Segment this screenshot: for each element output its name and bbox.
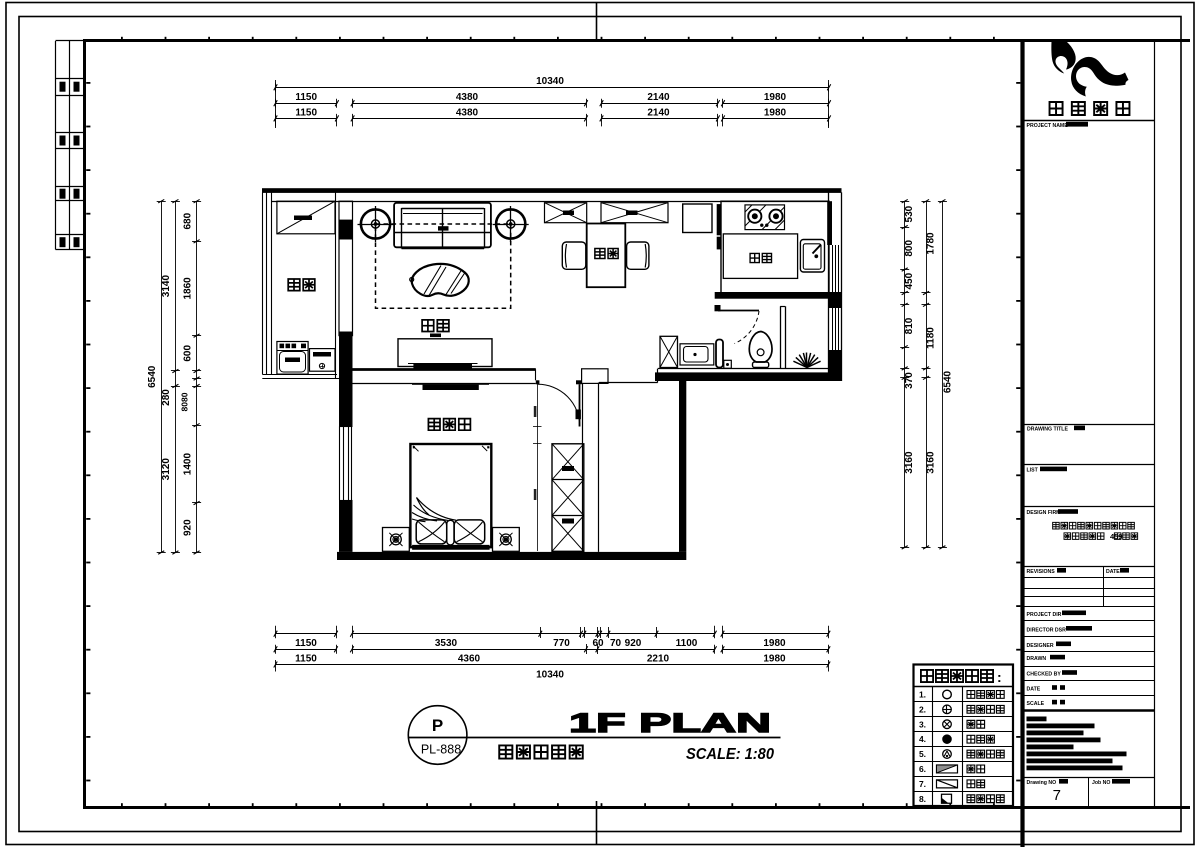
svg-text:1860: 1860 bbox=[182, 277, 193, 300]
svg-text:DESIGNER: DESIGNER bbox=[1027, 643, 1054, 649]
svg-text:1150: 1150 bbox=[295, 107, 317, 118]
svg-text:Job NO: Job NO bbox=[1092, 780, 1110, 786]
svg-text:2140: 2140 bbox=[647, 92, 670, 103]
svg-text:SCALE: 1:80: SCALE: 1:80 bbox=[686, 746, 774, 763]
svg-text:6.: 6. bbox=[919, 764, 926, 774]
svg-text::: : bbox=[997, 669, 1002, 685]
svg-text:680: 680 bbox=[182, 212, 193, 229]
svg-text:4380: 4380 bbox=[456, 92, 479, 103]
svg-text:770: 770 bbox=[553, 638, 570, 649]
svg-text:1.: 1. bbox=[919, 689, 926, 699]
svg-text:1980: 1980 bbox=[764, 92, 787, 103]
svg-text:10340: 10340 bbox=[536, 670, 564, 681]
svg-text:1F PLAN: 1F PLAN bbox=[569, 708, 771, 738]
svg-text:SCALE: SCALE bbox=[1027, 701, 1045, 707]
svg-text:3160: 3160 bbox=[926, 451, 937, 474]
svg-text:3.: 3. bbox=[919, 719, 926, 729]
svg-text:DRAWN: DRAWN bbox=[1027, 656, 1047, 662]
svg-text:530: 530 bbox=[904, 205, 915, 222]
svg-text:3530: 3530 bbox=[435, 638, 458, 649]
svg-text:280: 280 bbox=[161, 389, 172, 406]
svg-text:6540: 6540 bbox=[147, 365, 158, 388]
svg-text:PROJECT NAME: PROJECT NAME bbox=[1027, 123, 1069, 129]
svg-text:4.: 4. bbox=[919, 734, 926, 744]
svg-text:450: 450 bbox=[904, 272, 915, 289]
svg-text:4380: 4380 bbox=[456, 107, 479, 118]
svg-text:3140: 3140 bbox=[161, 275, 172, 298]
svg-text:1150: 1150 bbox=[295, 638, 317, 649]
svg-text:DRAWING TITLE: DRAWING TITLE bbox=[1027, 427, 1068, 433]
svg-text:DIRECTOR DSR: DIRECTOR DSR bbox=[1027, 628, 1067, 634]
svg-text:LIST: LIST bbox=[1027, 468, 1039, 474]
svg-text:1100: 1100 bbox=[676, 638, 698, 649]
svg-text:370: 370 bbox=[904, 372, 915, 389]
svg-text:920: 920 bbox=[625, 638, 642, 649]
svg-text:REVISIONS: REVISIONS bbox=[1027, 569, 1056, 575]
svg-text:1150: 1150 bbox=[295, 92, 317, 103]
svg-text:70: 70 bbox=[610, 638, 622, 649]
svg-text:DATE: DATE bbox=[1106, 569, 1120, 575]
svg-text:DESIGN FIRM: DESIGN FIRM bbox=[1027, 510, 1061, 516]
svg-text:2210: 2210 bbox=[647, 654, 670, 665]
svg-text:3120: 3120 bbox=[161, 458, 172, 481]
svg-text:4360: 4360 bbox=[458, 654, 481, 665]
svg-text:DATE: DATE bbox=[1027, 687, 1041, 693]
svg-text:CHECKED BY: CHECKED BY bbox=[1027, 672, 1062, 678]
svg-text:800: 800 bbox=[904, 240, 915, 257]
svg-text:PL-888: PL-888 bbox=[421, 743, 461, 757]
svg-text:10340: 10340 bbox=[536, 76, 564, 87]
svg-text:2140: 2140 bbox=[647, 107, 670, 118]
svg-text:8.: 8. bbox=[919, 794, 926, 804]
svg-text:1400: 1400 bbox=[182, 453, 193, 476]
svg-text:6540: 6540 bbox=[943, 370, 954, 393]
svg-text:P: P bbox=[432, 716, 443, 735]
svg-text:1780: 1780 bbox=[926, 232, 937, 255]
svg-text:1980: 1980 bbox=[763, 638, 786, 649]
svg-text:7: 7 bbox=[1053, 787, 1061, 804]
svg-text:PROJECT DIR: PROJECT DIR bbox=[1027, 612, 1062, 618]
svg-text:1980: 1980 bbox=[763, 654, 786, 665]
svg-text:1150: 1150 bbox=[295, 654, 317, 665]
svg-text:1180: 1180 bbox=[926, 327, 937, 349]
svg-text:8080: 8080 bbox=[180, 392, 190, 411]
svg-text:7.: 7. bbox=[919, 779, 926, 789]
svg-text:3160: 3160 bbox=[904, 451, 915, 474]
svg-text:2.: 2. bbox=[919, 704, 926, 714]
svg-text:810: 810 bbox=[904, 317, 915, 334]
svg-text:920: 920 bbox=[182, 519, 193, 536]
svg-text:Drawing NO: Drawing NO bbox=[1027, 780, 1057, 786]
svg-text:1980: 1980 bbox=[764, 107, 787, 118]
svg-text:5.: 5. bbox=[919, 749, 926, 759]
svg-text:600: 600 bbox=[182, 345, 193, 362]
